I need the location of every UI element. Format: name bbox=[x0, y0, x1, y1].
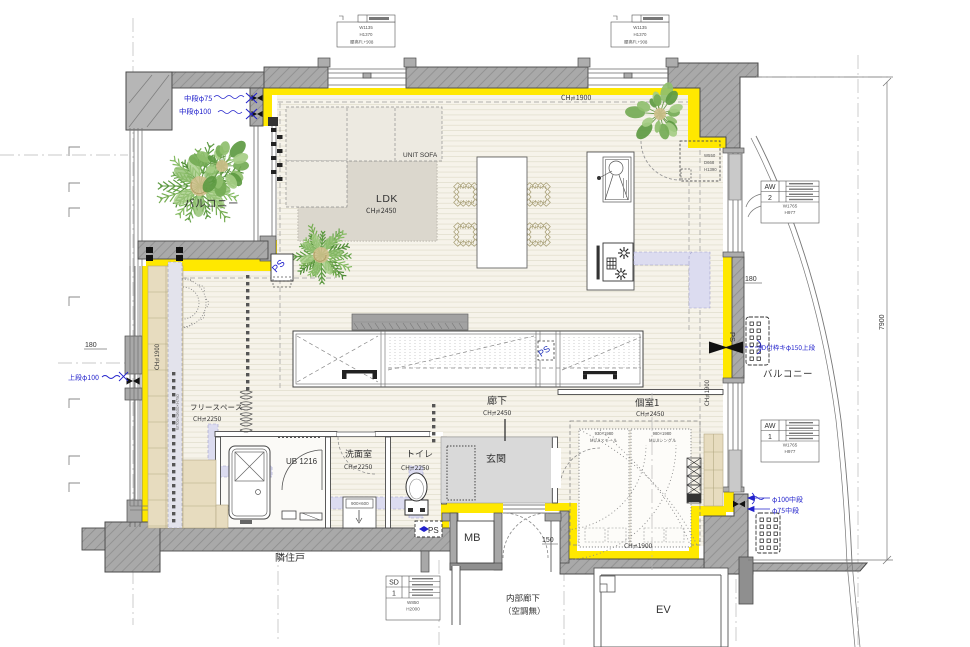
svg-text:H1370: H1370 bbox=[360, 32, 373, 37]
svg-text:PS: PS bbox=[428, 526, 439, 535]
svg-text:UB 1216: UB 1216 bbox=[286, 457, 318, 466]
svg-text:150: 150 bbox=[542, 537, 554, 544]
svg-text:H2000: H2000 bbox=[406, 607, 420, 612]
svg-text:180: 180 bbox=[85, 342, 97, 349]
svg-text:D668: D668 bbox=[704, 160, 715, 165]
svg-text:W700×D600×H750: W700×D600×H750 bbox=[175, 393, 180, 430]
svg-text:LDK: LDK bbox=[376, 193, 398, 205]
svg-text:1: 1 bbox=[768, 434, 772, 441]
svg-text:900×600: 900×600 bbox=[351, 501, 369, 506]
svg-text:H977: H977 bbox=[785, 210, 796, 215]
svg-text:1: 1 bbox=[392, 591, 396, 598]
svg-text:AW: AW bbox=[764, 184, 775, 191]
svg-text:W850: W850 bbox=[407, 600, 419, 605]
svg-text:AW: AW bbox=[764, 423, 775, 430]
svg-text:180: 180 bbox=[745, 276, 757, 283]
svg-text:H977: H977 bbox=[785, 449, 796, 454]
svg-text:7900: 7900 bbox=[879, 314, 886, 330]
svg-text:980×1980: 980×1980 bbox=[653, 431, 672, 436]
svg-text:H1390: H1390 bbox=[704, 167, 717, 172]
svg-text:W1135: W1135 bbox=[633, 25, 647, 30]
svg-text:SD: SD bbox=[389, 580, 399, 587]
svg-text:UNIT SOFA: UNIT SOFA bbox=[403, 152, 438, 159]
svg-text:W1135: W1135 bbox=[359, 25, 373, 30]
svg-text:2: 2 bbox=[768, 195, 772, 202]
svg-text:W1765: W1765 bbox=[783, 443, 798, 448]
svg-text:MB: MB bbox=[464, 532, 481, 544]
svg-text:930×1980: 930×1980 bbox=[595, 431, 614, 436]
svg-text:EV: EV bbox=[656, 604, 671, 616]
svg-text:W1765: W1765 bbox=[783, 204, 798, 209]
svg-text:PS: PS bbox=[728, 332, 737, 342]
svg-text:H1370: H1370 bbox=[634, 32, 647, 37]
svg-text:W550: W550 bbox=[704, 153, 716, 158]
